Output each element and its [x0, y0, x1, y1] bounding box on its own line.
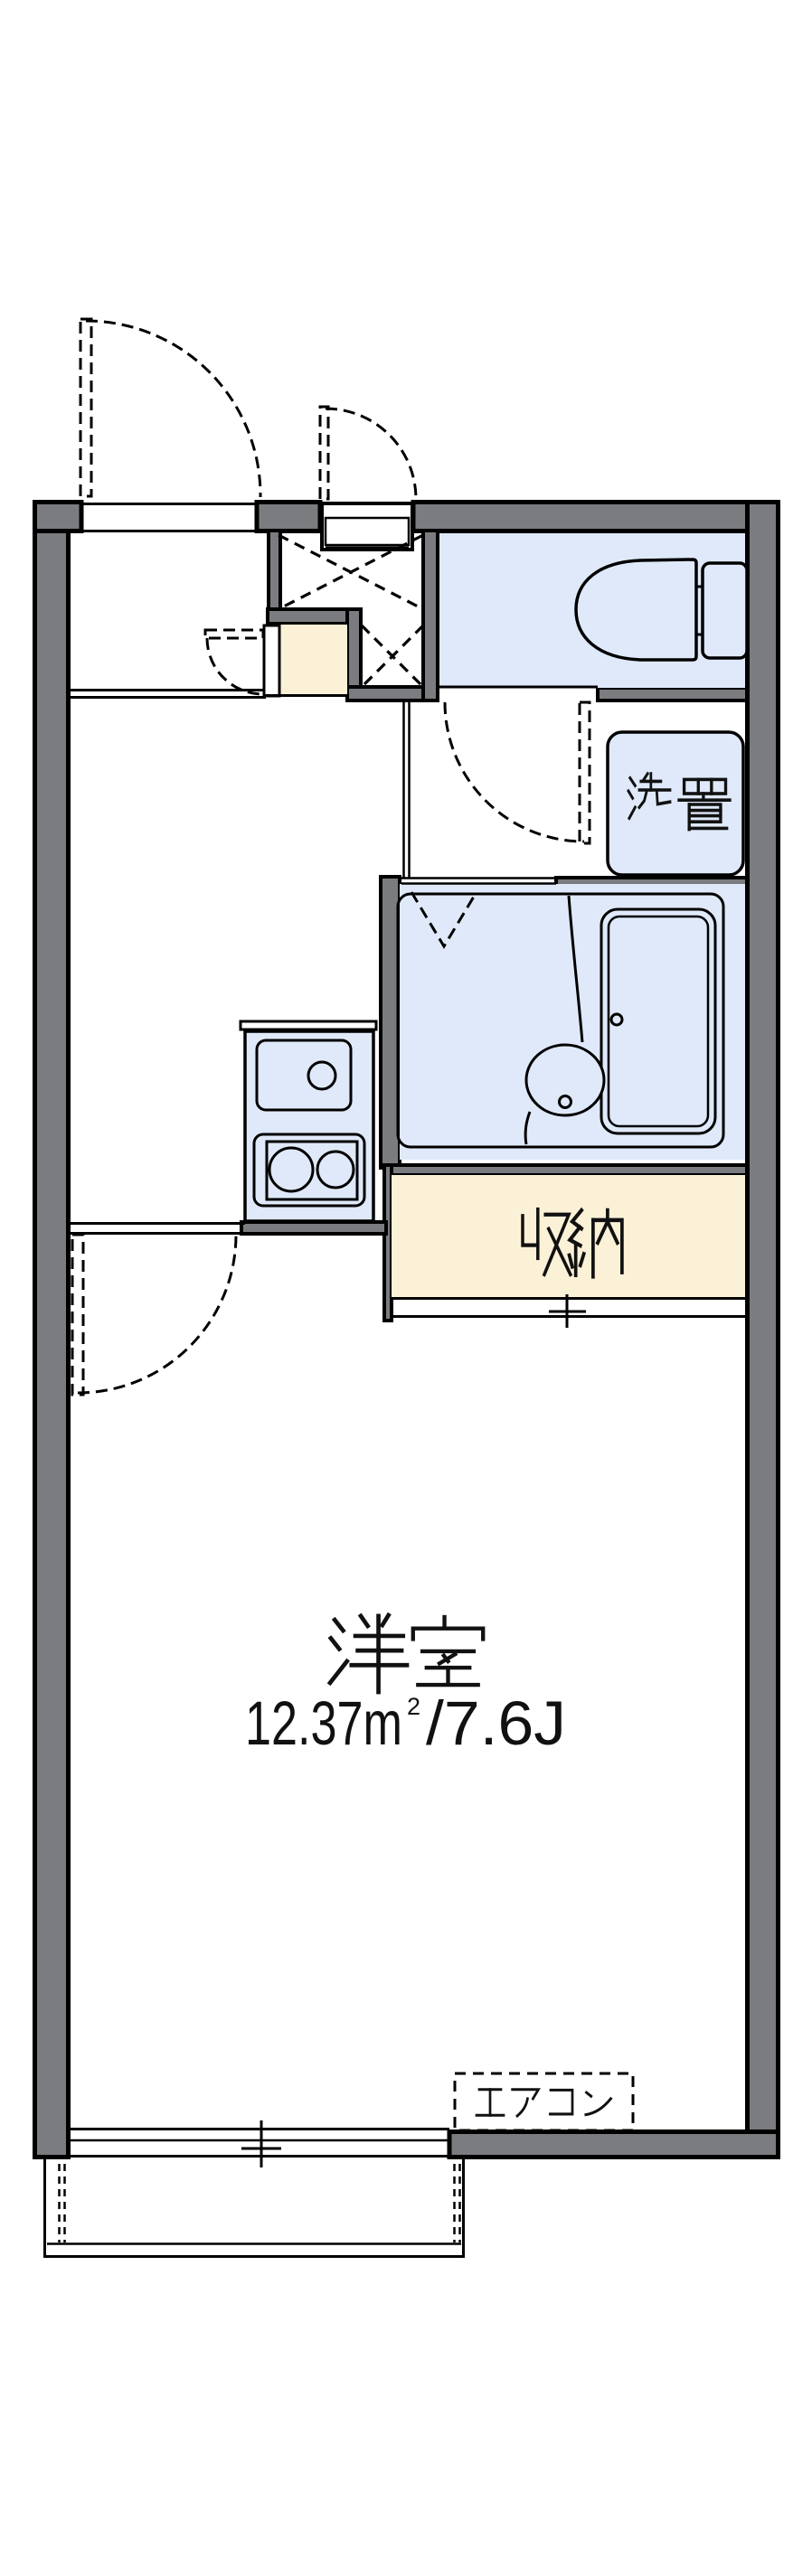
svg-text:/7.6J: /7.6J — [426, 1688, 566, 1758]
svg-text:2: 2 — [407, 1693, 420, 1720]
svg-text:12.37m: 12.37m — [245, 1688, 402, 1758]
